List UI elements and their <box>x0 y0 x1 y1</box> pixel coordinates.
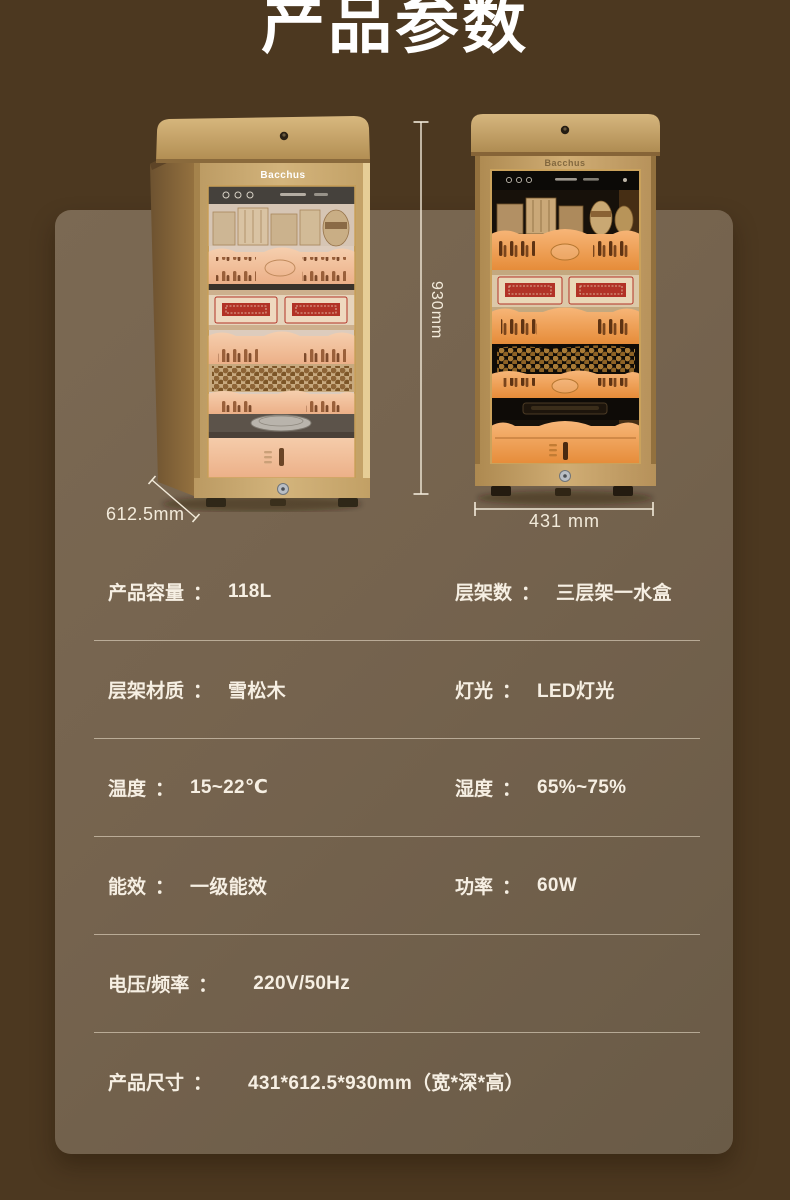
product-image-angled: Bacchus <box>142 112 377 512</box>
spec-row-temperature: 温度 ： 15~22℃ 湿度 ： 65%~75% <box>94 739 700 837</box>
spec-cell: 灯光 ： LED灯光 <box>455 676 615 703</box>
spec-value: 15~22℃ <box>190 776 268 799</box>
spec-label: 灯光 <box>455 676 493 703</box>
page-title: 产品参数 <box>0 0 790 66</box>
cabinet-foot <box>338 498 358 507</box>
spec-label: 产品尺寸 <box>108 1068 184 1095</box>
spec-row-size: 产品尺寸 ： 431*612.5*930mm（宽*深*高） <box>94 1033 700 1130</box>
product-image-front: Bacchus <box>463 108 668 508</box>
cabinet-foot <box>491 486 511 496</box>
spec-value: 220V/50Hz <box>253 973 350 995</box>
spec-cell: 温度 ： 15~22℃ <box>94 774 455 801</box>
spec-row-energy: 能效 ： 一级能效 功率 ： 60W <box>94 837 700 935</box>
spec-label: 层架材质 <box>108 676 184 703</box>
spec-row-capacity: 产品容量 ： 118L 层架数 ： 三层架一水盒 <box>94 543 700 641</box>
spec-value: 60W <box>537 875 577 897</box>
spec-value: 雪松木 <box>228 676 286 703</box>
spec-separator: ： <box>155 872 174 899</box>
spec-value: 431*612.5*930mm（宽*深*高） <box>248 1068 524 1095</box>
spec-separator: ： <box>193 676 212 703</box>
brand-label: Bacchus <box>260 170 305 181</box>
brand-label: Bacchus <box>544 158 585 168</box>
spec-label: 层架数 <box>455 578 512 605</box>
depth-dimension-label: 612.5mm <box>106 504 185 525</box>
spec-cell: 功率 ： 60W <box>455 872 577 899</box>
spec-label: 温度 <box>108 774 146 801</box>
spec-row-shelf-material: 层架材质 ： 雪松木 灯光 ： LED灯光 <box>94 641 700 739</box>
spec-value: 118L <box>228 581 271 603</box>
spec-separator: ： <box>502 774 521 801</box>
spec-separator: ： <box>155 774 174 801</box>
spec-cell: 层架材质 ： 雪松木 <box>94 676 455 703</box>
spec-cell: 产品尺寸 ： 431*612.5*930mm（宽*深*高） <box>94 1068 700 1095</box>
cabinet-crown <box>156 116 370 162</box>
spec-cell: 产品容量 ： 118L <box>94 578 455 605</box>
spec-separator: ： <box>502 872 521 899</box>
spec-cell: 电压/频率 ： 220V/50Hz <box>94 970 700 997</box>
spec-cell: 层架数 ： 三层架一水盒 <box>455 578 672 605</box>
spec-label: 湿度 <box>455 774 493 801</box>
spec-label: 功率 <box>455 872 493 899</box>
cabinet-foot <box>613 486 633 496</box>
spec-cell: 湿度 ： 65%~75% <box>455 774 626 801</box>
cabinet-interior <box>491 170 640 464</box>
spec-separator: ： <box>502 676 521 703</box>
height-dimension-label: 930mm <box>427 281 445 339</box>
spec-separator: ： <box>193 578 212 605</box>
spec-label: 电压/频率 <box>108 970 189 997</box>
spec-cell: 能效 ： 一级能效 <box>94 872 455 899</box>
spec-row-voltage: 电压/频率 ： 220V/50Hz <box>94 935 700 1033</box>
spec-value: LED灯光 <box>537 676 615 703</box>
spec-label: 能效 <box>108 872 146 899</box>
spec-value: 65%~75% <box>537 777 626 799</box>
spec-separator: ： <box>198 970 217 997</box>
spec-separator: ： <box>193 1068 212 1095</box>
spec-value: 三层架一水盒 <box>556 578 672 605</box>
width-dimension-label: 431 mm <box>529 511 600 532</box>
spec-value: 一级能效 <box>190 872 267 899</box>
spec-separator: ： <box>521 578 540 605</box>
spec-label: 产品容量 <box>108 578 184 605</box>
cabinet-side-face <box>150 142 194 496</box>
spec-table: 产品容量 ： 118L 层架数 ： 三层架一水盒 层架材质 ： 雪松木 灯光 ：… <box>94 543 700 1130</box>
